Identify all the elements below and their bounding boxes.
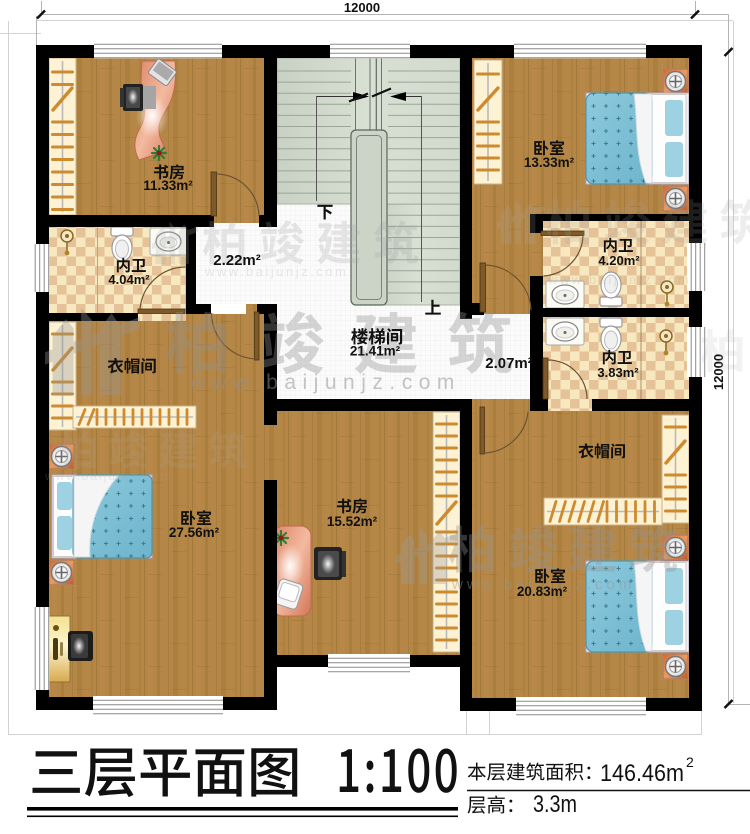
svg-text:www.baijunjz.com: www.baijunjz.com — [189, 371, 461, 394]
svg-text:11.33m²: 11.33m² — [143, 178, 193, 193]
svg-text:2.22m²: 2.22m² — [213, 252, 261, 269]
svg-text:3.83m²: 3.83m² — [597, 365, 639, 380]
svg-text:www.baijunjz.com: www.baijunjz.com — [44, 469, 172, 483]
svg-text:4.20m²: 4.20m² — [598, 253, 640, 268]
svg-text:www.baijunjz.com: www.baijunjz.com — [547, 272, 691, 287]
svg-text:15.52m²: 15.52m² — [327, 514, 378, 529]
svg-text:27.56m²: 27.56m² — [169, 525, 220, 540]
svg-text:21.41m²: 21.41m² — [350, 344, 401, 359]
svg-text:20.83m²: 20.83m² — [517, 584, 568, 599]
svg-text:12000: 12000 — [344, 0, 380, 15]
svg-text:146.46m: 146.46m — [600, 760, 684, 787]
svg-text:4.04m²: 4.04m² — [108, 272, 150, 287]
svg-text:2: 2 — [686, 754, 694, 770]
svg-text:2.07m²: 2.07m² — [485, 355, 533, 372]
svg-text:13.33m²: 13.33m² — [524, 155, 575, 170]
svg-text:3.3m: 3.3m — [533, 791, 577, 818]
